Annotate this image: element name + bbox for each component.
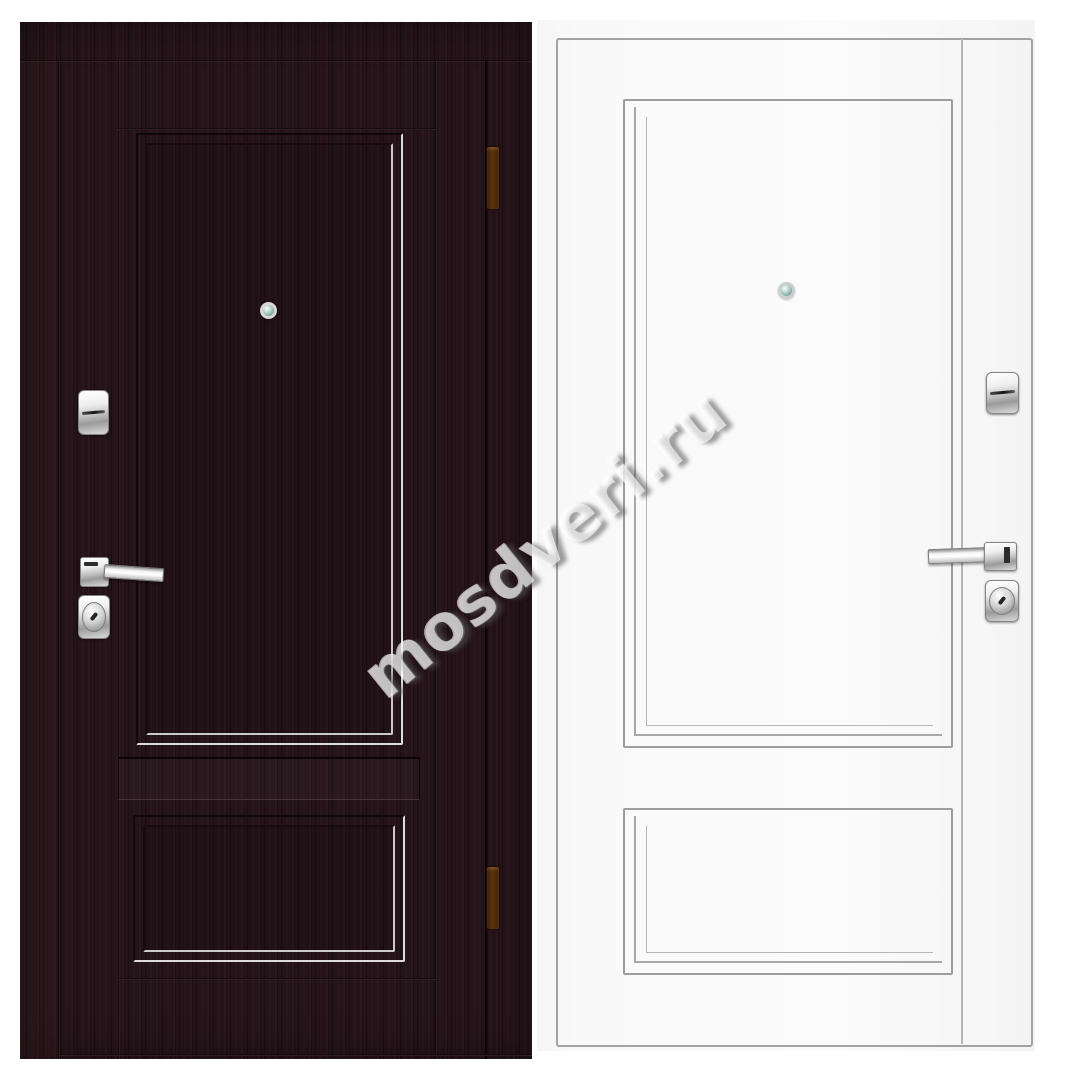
- lower-panel-inner-molding: [143, 825, 395, 952]
- handle-neck-shadow: [84, 562, 98, 566]
- keyhole: [90, 612, 99, 622]
- peephole: [260, 302, 277, 319]
- escutcheon-boss: [989, 587, 1015, 615]
- white-lower-panel-line-3: [646, 826, 933, 953]
- door-product-photo: mosdveri.ru: [0, 0, 1073, 1067]
- handle-rose: [984, 542, 1017, 571]
- leaf-right-stile-seam: [435, 60, 437, 1059]
- upper-panel-molding: [136, 133, 403, 745]
- peephole: [778, 282, 795, 299]
- door-exterior-dark: [20, 22, 532, 1059]
- middle-rail-band: [118, 757, 420, 800]
- hinge-top: [486, 146, 500, 210]
- lock-cover-slot: [82, 410, 105, 415]
- escutcheon-boss: [82, 602, 106, 632]
- lever-handle: [104, 564, 165, 582]
- leaf-left-stile-seam: [118, 60, 120, 1059]
- white-upper-panel-molding: [623, 99, 953, 748]
- frame-head-seam: [20, 60, 532, 62]
- hinge-bottom: [486, 866, 500, 930]
- upper-panel-inner-molding: [146, 143, 393, 735]
- bottom-rail-seam: [118, 978, 437, 980]
- lower-panel-molding: [133, 815, 405, 962]
- frame-left-stile: [20, 60, 58, 1059]
- lock-cylinder-cover: [986, 372, 1019, 414]
- white-door-stile-seam: [961, 39, 963, 1044]
- keyhole-escutcheon: [985, 580, 1019, 622]
- lever-handle: [928, 547, 990, 564]
- keyhole: [998, 596, 1007, 606]
- leaf-bottom-seam: [58, 1054, 532, 1056]
- door-interior-white: [537, 20, 1035, 1051]
- top-rail-seam: [118, 128, 437, 130]
- lock-cover-slot: [990, 390, 1015, 395]
- frame-stile-seam: [58, 60, 60, 1059]
- white-upper-panel-line-3: [646, 117, 933, 726]
- white-lower-panel-molding: [623, 808, 953, 975]
- handle-neck-shadow: [1004, 547, 1010, 563]
- keyhole-escutcheon: [78, 595, 110, 639]
- lock-cylinder-cover: [78, 390, 109, 435]
